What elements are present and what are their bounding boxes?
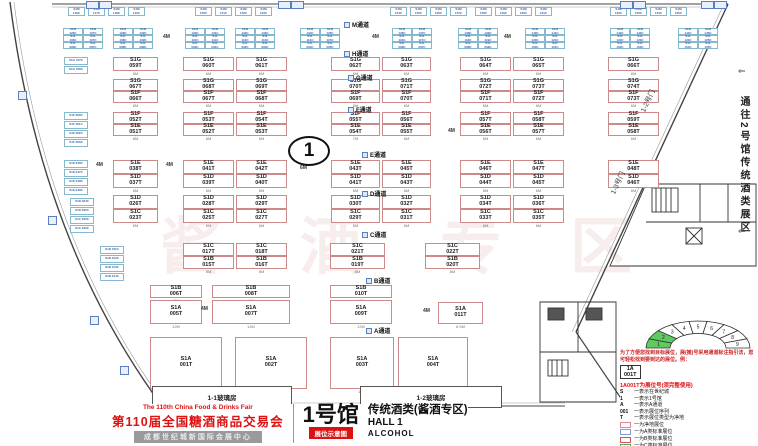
booth-size: 6M	[353, 189, 359, 193]
legend-booth-types: 一为净地展位一为A类标准展位一为B类标准展位一为C类标准展位一为D类标准展位	[620, 422, 757, 446]
booth-S1B-010T[interactable]: S1B010T16M	[330, 285, 392, 298]
booth-S1D-028T[interactable]: S1D028T6M	[183, 195, 234, 209]
booth-S1C-032C[interactable]: S1C 032C	[70, 216, 94, 224]
booth-size: 6M	[483, 224, 489, 228]
booth-size: 6M	[259, 72, 265, 76]
booth-S1F-070T[interactable]: S1F070T6M	[382, 91, 431, 103]
booth-S1M-146C[interactable]: S1M146C	[68, 7, 85, 16]
booth-S1L-090C[interactable]: S1L090C	[185, 42, 205, 49]
booth-size: 6M	[206, 189, 212, 193]
legend-type-row: 一为净地展位	[620, 422, 757, 429]
booth-size: 8M	[206, 270, 212, 274]
arrow-icon: ⇐	[738, 66, 746, 77]
booth-S1D-044T[interactable]: S1D044T6M	[460, 174, 511, 188]
booth-S1M-156C[interactable]: S1M156C	[430, 7, 447, 16]
booth-S1B-019T[interactable]: S1B019T8M	[330, 256, 385, 269]
booth-number: 020T	[446, 263, 459, 269]
booth-S1L-105C[interactable]: S1L105C	[698, 42, 718, 49]
booth-S1C-022T[interactable]: S1C022T8M	[425, 243, 480, 256]
booth-size: 6M	[483, 72, 489, 76]
fan-segment-number: 3	[671, 330, 674, 336]
booth-number: 059T	[129, 64, 142, 70]
booth-S1F-053T[interactable]: S1F053T6M	[183, 112, 234, 124]
booth-number: 043T	[349, 167, 362, 173]
booth-S1M-158C[interactable]: S1M158C	[475, 7, 492, 16]
booth-number: 047T	[532, 167, 545, 173]
booth-S1E-052T[interactable]: S1E052T6M	[183, 124, 234, 136]
booth-S1D-035C[interactable]: S1D 035C	[70, 207, 94, 215]
booth-number: 061T	[255, 64, 268, 70]
booth-S1A-007T[interactable]: S1A007T12M	[212, 300, 290, 324]
booth-S1E-038T[interactable]: S1E038T6M	[113, 160, 158, 174]
booth-S1G-060T[interactable]: S1G060T6M	[183, 57, 234, 71]
booth-S1E-046C[interactable]: S1E 046C	[64, 160, 88, 168]
booth-S1C-031T[interactable]: S1C031T6M	[382, 209, 431, 223]
booth-S1L-099C[interactable]: S1L099C	[478, 42, 498, 49]
booth-S1E-041T[interactable]: S1E041T6M	[183, 160, 234, 174]
hall-name-cn: 1号馆	[303, 404, 359, 426]
booth-S1E-054T[interactable]: S1E054T7M	[331, 124, 380, 136]
booth-S1D-039T[interactable]: S1D039T6M	[183, 174, 234, 188]
booth-S1L-086C[interactable]: S1L086C	[63, 42, 83, 49]
hydrant-icon	[344, 22, 350, 28]
fan-segment-number: 5	[697, 325, 700, 331]
booth-S1F-054T[interactable]: S1F054T6M	[236, 112, 287, 124]
booth-S1A-002T[interactable]: S1A002T10M	[235, 337, 307, 389]
booth-S1G-064T[interactable]: S1G064T6M	[460, 57, 511, 71]
booth-number: 066T	[627, 64, 640, 70]
booth-S1D-034C[interactable]: S1D 034C	[70, 198, 94, 206]
fair-title-cn: 第110届全国糖酒商品交易会	[112, 411, 284, 430]
hall-title: 1号馆 展位示意图	[303, 404, 359, 439]
booth-S1L-103C[interactable]: S1L103C	[630, 42, 650, 49]
booth-size: 6M	[631, 137, 637, 141]
booth-size: 6M	[206, 72, 212, 76]
booth-size: 7M	[353, 137, 359, 141]
booth-S1M-160C[interactable]: S1M160C	[515, 7, 532, 16]
booth-S1C-033C[interactable]: S1C 033C	[70, 225, 94, 233]
booth-number: 037T	[129, 181, 142, 187]
legend-example-booth: 1A 001T	[620, 365, 641, 379]
booth-S1E-046T[interactable]: S1E046T6M	[460, 160, 511, 174]
booth-size: 6M	[133, 72, 139, 76]
booth-S1E-056T[interactable]: S1E056T6M	[460, 124, 511, 136]
booth-size: 6M	[206, 137, 212, 141]
fair-title: The 110th China Food & Drinks Fair 第110届…	[112, 404, 284, 443]
fan-segment-number: 4	[683, 326, 686, 332]
booth-S1G-072T[interactable]: S1G072T6M	[460, 79, 511, 91]
booth-S1F-066T[interactable]: S1F066T6M	[113, 91, 158, 103]
booth-S1F-059T[interactable]: S1F059T6M	[608, 112, 659, 124]
dimension-label: 4M	[372, 34, 379, 40]
aisle-label-H: H通道	[344, 49, 368, 58]
booth-type-swatch	[620, 429, 631, 435]
hall-name-en: HALL 1	[368, 417, 468, 429]
booth-S1G-071T[interactable]: S1G071T6M	[382, 79, 431, 91]
booth-S1A-009T[interactable]: S1A009T12M	[330, 300, 392, 324]
booth-S1B-006T[interactable]: S1B006T8M	[150, 285, 202, 298]
dimension-label: 4M	[166, 162, 173, 168]
building-bottom-right	[540, 302, 616, 402]
booth-S1E-043T[interactable]: S1E043T6M	[331, 160, 380, 174]
booth-S1F-057T[interactable]: S1F057T6M	[460, 112, 511, 124]
booth-number: 022T	[446, 250, 459, 256]
booth-S1L-088C[interactable]: S1L088C	[113, 42, 133, 49]
booth-S1D-045T[interactable]: S1D045T6M	[513, 174, 564, 188]
booth-S1L-087C[interactable]: S1L087C	[83, 42, 103, 49]
booth-S1C-021T[interactable]: S1C021T8M	[330, 243, 385, 256]
dimension-label: 4M	[504, 34, 511, 40]
booth-size: 6M	[483, 137, 489, 141]
dimension-label: 4M	[201, 306, 208, 312]
booth-number: 048T	[627, 167, 640, 173]
booth-size: 6M	[206, 104, 212, 108]
booth-S1D-036T[interactable]: S1D036T6M	[513, 195, 564, 209]
fan-segment-number: 1	[657, 342, 660, 348]
booth-S1G-068T[interactable]: S1G068T6M	[183, 79, 234, 91]
booth-S1F-067T[interactable]: S1F067T6M	[183, 91, 234, 103]
booth-size: 12M	[172, 325, 180, 329]
booth-S1B-020T[interactable]: S1B020T8M	[425, 256, 480, 269]
booth-S1L-101C[interactable]: S1L101C	[545, 42, 565, 49]
hydrant-icon	[344, 51, 350, 57]
door-marker	[278, 1, 291, 9]
booth-S1G-061T[interactable]: S1G061T6M	[236, 57, 287, 71]
booth-S1G-078C[interactable]: S1G 078C	[64, 66, 88, 74]
dimension-label: 4M	[423, 308, 430, 314]
booth-number: 031T	[400, 216, 413, 222]
booth-size: 6M	[536, 137, 542, 141]
booth-S1E-045T[interactable]: S1E045T6M	[382, 160, 431, 174]
booth-S1M-155C[interactable]: S1M155C	[410, 7, 427, 16]
booth-size: 6M	[536, 72, 542, 76]
booth-S1C-029T[interactable]: S1C029T6M	[331, 209, 380, 223]
booth-number: 001T	[180, 363, 193, 369]
door-marker	[291, 1, 304, 9]
booth-S1G-073T[interactable]: S1G073T6M	[513, 79, 564, 91]
booth-number: 035T	[532, 216, 545, 222]
door-marker	[86, 1, 99, 9]
booth-S1M-149C[interactable]: S1M149C	[128, 7, 145, 16]
booth-number: 008T	[245, 292, 258, 298]
booth-size: 6M	[353, 224, 359, 228]
booth-size: 6M	[259, 224, 265, 228]
aisle-label-G: G通道	[348, 73, 373, 82]
booth-S1A-001T[interactable]: S1A001T10M	[150, 337, 222, 389]
aisle-label-B: B通道	[366, 276, 390, 285]
booth-S1M-151C[interactable]: S1M151C	[215, 7, 232, 16]
booth-number: 005T	[170, 312, 183, 318]
booth-S1F-060C[interactable]: S1F 060C	[64, 112, 88, 120]
booth-S1E-042T[interactable]: S1E042T6M	[236, 160, 287, 174]
booth-S1C-035T[interactable]: S1C035T6M	[513, 209, 564, 223]
fan-segment-number: 7	[722, 330, 725, 336]
booth-number: 019T	[351, 263, 364, 269]
booth-number: 030T	[349, 202, 362, 208]
booth-S1A-004T[interactable]: S1A004T10M	[398, 337, 468, 389]
booth-S1B-016T[interactable]: S1B016T8M	[236, 256, 287, 269]
booth-number: 046T	[479, 167, 492, 173]
booth-size: 8M	[450, 270, 456, 274]
booth-S1G-059T[interactable]: S1G059T6M	[113, 57, 158, 71]
booth-size: 6M	[536, 104, 542, 108]
booth-S1M-157C[interactable]: S1M157C	[450, 7, 467, 16]
booth-size: 6M	[483, 189, 489, 193]
aisle-label-E: E通道	[362, 150, 386, 159]
booth-S1L-102C[interactable]: S1L102C	[610, 42, 630, 49]
booth-number: 006T	[170, 292, 183, 298]
booth-number: 060T	[202, 64, 215, 70]
dimension-label: 4M	[163, 34, 170, 40]
booth-S1M-154C[interactable]: S1M154C	[390, 7, 407, 16]
booth-S1C-023T[interactable]: S1C023T6M	[113, 209, 158, 223]
booth-S1F-063C[interactable]: S1F 063C	[64, 139, 88, 147]
booth-S1L-104C[interactable]: S1L104C	[678, 42, 698, 49]
hydrant-icon	[366, 278, 372, 284]
booth-S1G-063T[interactable]: S1G063T6M	[382, 57, 431, 71]
booth-S1L-089C[interactable]: S1L089C	[133, 42, 153, 49]
booth-size: 6M	[631, 72, 637, 76]
aisle-label-F: F通道	[348, 105, 372, 114]
booth-number: 044T	[479, 181, 492, 187]
booth-number: 063T	[400, 64, 413, 70]
booth-S1E-048T[interactable]: S1E048T6M	[608, 160, 659, 174]
booth-S1B-013C[interactable]: S1B 013C	[100, 264, 124, 272]
booth-S1M-152C[interactable]: S1M152C	[235, 7, 252, 16]
building-top-right	[610, 184, 756, 266]
legend-intro: 为了方便您找到目标展位，展(摊)号采用通道标注指引法，您可轻松找到要到达的展位。…	[620, 350, 757, 363]
booth-number: 007T	[245, 312, 258, 318]
booth-S1G-062T[interactable]: S1G062T6M	[331, 57, 380, 71]
booth-number: 029T	[349, 216, 362, 222]
booth-number: 016T	[255, 263, 268, 269]
booth-S1L-097C[interactable]: S1L097C	[412, 42, 432, 49]
door-marker	[701, 1, 714, 9]
booth-S1D-041T[interactable]: S1D041T6M	[331, 174, 380, 188]
booth-S1E-055T[interactable]: S1E055T6M	[382, 124, 431, 136]
booth-size: 6M	[404, 189, 410, 193]
booth-number: 062T	[349, 64, 362, 70]
booth-S1L-098C[interactable]: S1L098C	[458, 42, 478, 49]
booth-S1G-067T[interactable]: S1G067T6M	[113, 79, 158, 91]
booth-number: 046T	[627, 181, 640, 187]
booth-size: 6M	[404, 137, 410, 141]
booth-number: 032T	[400, 202, 413, 208]
booth-size: 6M	[259, 137, 265, 141]
aisle-label-C: C通道	[362, 230, 386, 239]
booth-S1F-052T[interactable]: S1F052T6M	[113, 112, 158, 124]
booth-S1E-049C[interactable]: S1E 049C	[64, 187, 88, 195]
booth-size: 8M	[355, 270, 361, 274]
booth-S1F-056T[interactable]: S1F056T6M	[382, 112, 431, 124]
booth-S1G-077C[interactable]: S1G 077C	[64, 57, 88, 65]
booth-number: 041T	[202, 167, 215, 173]
booth-size: 6M	[133, 189, 139, 193]
booth-size: 8M	[259, 270, 265, 274]
hydrant-icon	[348, 107, 354, 113]
booth-S1E-051T[interactable]: S1E051T6M	[113, 124, 158, 136]
venue-locator-fan: 123456789	[646, 321, 750, 348]
side-note-to-hall2: 通往2号馆传统酒类展区	[736, 96, 751, 235]
booth-S1F-062C[interactable]: S1F 062C	[64, 130, 88, 138]
hydrant-icon	[348, 75, 354, 81]
booth-number: 027T	[255, 216, 268, 222]
booth-S1E-053T[interactable]: S1E053T6M	[236, 124, 287, 136]
booth-S1F-072T[interactable]: S1F072T6M	[513, 91, 564, 103]
booth-S1D-043T[interactable]: S1D043T6M	[382, 174, 431, 188]
booth-S1B-011C[interactable]: S1B 011C	[100, 246, 124, 254]
legend-type-row: 一为A类标准展位	[620, 429, 757, 436]
legend: 为了方便您找到目标展位，展(摊)号采用通道标注指引法，您可轻松找到要到达的展位。…	[620, 350, 757, 446]
booth-size: 6M	[133, 137, 139, 141]
booth-number: 021T	[351, 250, 364, 256]
booth-S1E-058T[interactable]: S1E058T6M	[608, 124, 659, 136]
booth-S1M-165C[interactable]: S1M165C	[670, 7, 687, 16]
booth-number: 045T	[400, 167, 413, 173]
floor-plan: 123456789 酱 酒 专 区 S1G059T6MS1G060T6MS1G0…	[0, 0, 758, 446]
booth-S1M-161C[interactable]: S1M161C	[535, 7, 552, 16]
booth-S1F-068T[interactable]: S1F068T6M	[236, 91, 287, 103]
booth-size: 6M	[631, 189, 637, 193]
booth-S1C-017T[interactable]: S1C017T8M	[183, 243, 234, 256]
fair-title-en: The 110th China Food & Drinks Fair	[143, 404, 253, 411]
booth-type-swatch	[620, 437, 631, 443]
fan-segment-number: 8	[731, 335, 734, 341]
door-marker	[120, 366, 129, 375]
booth-S1F-069T[interactable]: S1F069T6M	[331, 91, 380, 103]
booth-number: 002T	[265, 363, 278, 369]
booth-size: 6M	[536, 189, 542, 193]
booth-S1F-071T[interactable]: S1F071T6M	[460, 91, 511, 103]
booth-S1D-040T[interactable]: S1D040T6M	[236, 174, 287, 188]
booth-number: 011T	[454, 313, 466, 319]
zone-name-cn: 传统酒类(酱酒专区)	[368, 404, 468, 417]
booth-number: 036T	[532, 202, 545, 208]
booth-S1B-008T[interactable]: S1B008T16M	[212, 285, 290, 298]
booth-S1L-095C[interactable]: S1L095C	[320, 42, 340, 49]
booth-S1B-015T[interactable]: S1B015T8M	[183, 256, 234, 269]
booth-number: 034T	[479, 202, 492, 208]
booth-number: 015T	[202, 263, 215, 269]
booth-S1M-150C[interactable]: S1M150C	[195, 7, 212, 16]
booth-S1D-037T[interactable]: S1D037T6M	[113, 174, 158, 188]
door-marker	[90, 316, 99, 325]
booth-number: 029T	[255, 202, 268, 208]
booth-number: 017T	[202, 250, 215, 256]
booth-S1B-014C[interactable]: S1B 014C	[100, 273, 124, 281]
booth-S1M-153C[interactable]: S1M153C	[255, 7, 272, 16]
fan-segment-number: 2	[662, 335, 665, 341]
booth-number: 038T	[129, 167, 142, 173]
aisle-label-A: A通道	[366, 326, 390, 335]
legend-example-bottom: 001T	[624, 372, 637, 378]
door-marker	[620, 1, 633, 9]
booth-S1F-058T[interactable]: S1F058T6M	[513, 112, 564, 124]
booth-S1E-047T[interactable]: S1E047T6M	[513, 160, 564, 174]
booth-S1C-025T[interactable]: S1C025T6M	[183, 209, 234, 223]
booth-S1L-100C[interactable]: S1L100C	[525, 42, 545, 49]
booth-S1A-003T[interactable]: S1A003T10M	[330, 337, 394, 389]
booth-number: 064T	[479, 64, 492, 70]
booth-size: 6M	[631, 104, 637, 108]
legend-definitions: S一表示在世纪城1一表示1号馆A一表示A通道001一表示展位序列T一表示展位类型…	[620, 389, 757, 422]
booth-S1C-027T[interactable]: S1C027T6M	[236, 209, 287, 223]
aisle-label-M: M通道	[344, 20, 369, 29]
door-marker	[633, 1, 646, 9]
booth-number: 033T	[479, 216, 492, 222]
arrow-icon: ⇐	[738, 226, 746, 237]
booth-size: 6M	[259, 104, 265, 108]
booth-S1E-048C[interactable]: S1E 048C	[64, 178, 88, 186]
booth-S1E-057T[interactable]: S1E057T6M	[513, 124, 564, 136]
booth-number: 028T	[202, 202, 215, 208]
booth-S1D-034T[interactable]: S1D034T6M	[460, 195, 511, 209]
booth-S1A-011T[interactable]: S1A011T6.5M	[438, 302, 483, 324]
booth-number: 065T	[532, 64, 545, 70]
booth-S1B-012C[interactable]: S1B 012C	[100, 255, 124, 263]
booth-number: 023T	[129, 216, 142, 222]
booth-S1D-029T[interactable]: S1D029T6M	[236, 195, 287, 209]
booth-number: 025T	[202, 216, 215, 222]
booth-S1L-091C[interactable]: S1L091C	[205, 42, 225, 49]
booth-S1G-065T[interactable]: S1G065T6M	[513, 57, 564, 71]
booth-S1D-032T[interactable]: S1D032T6M	[382, 195, 431, 209]
door-marker	[48, 216, 57, 225]
booth-size: 6M	[133, 104, 139, 108]
booth-size: 6M	[404, 104, 410, 108]
booth-size: 12M	[247, 325, 255, 329]
booth-S1M-159C[interactable]: S1M159C	[495, 7, 512, 16]
booth-size: 6M	[259, 189, 265, 193]
booth-S1G-069T[interactable]: S1G069T6M	[236, 79, 287, 91]
booth-number: 042T	[255, 167, 268, 173]
booth-size: 6M	[206, 224, 212, 228]
booth-size: 6M	[404, 224, 410, 228]
booth-S1G-066T[interactable]: S1G066T6M	[608, 57, 659, 71]
door-marker	[18, 91, 27, 100]
booth-size: 6M	[536, 224, 542, 228]
dimension-label: 4M	[448, 128, 455, 134]
booth-size: 6M	[404, 72, 410, 76]
booth-S1L-092C[interactable]: S1L092C	[235, 42, 255, 49]
booth-S1C-018T[interactable]: S1C018T8M	[236, 243, 287, 256]
booth-number: 041T	[349, 181, 362, 187]
booth-number: 039T	[202, 181, 215, 187]
hydrant-icon	[362, 232, 368, 238]
booth-S1M-164C[interactable]: S1M164C	[650, 7, 667, 16]
booth-S1E-047C[interactable]: S1E 047C	[64, 169, 88, 177]
legend-headline: 1A001T为展位号(须完整使用)	[620, 381, 757, 389]
venue-name: 成都世纪城新国际会展中心	[134, 431, 262, 443]
booth-type-swatch	[620, 422, 631, 428]
dimension-label: 4M	[96, 162, 103, 168]
booth-S1D-026T[interactable]: S1D026T6M	[113, 195, 158, 209]
booth-number: 009T	[355, 312, 368, 318]
booth-S1L-094C[interactable]: S1L094C	[300, 42, 320, 49]
booth-S1L-096C[interactable]: S1L096C	[392, 42, 412, 49]
hall-subtitle: 传统酒类(酱酒专区) HALL 1 ALCOHOL	[368, 404, 468, 438]
booth-S1C-033T[interactable]: S1C033T6M	[460, 209, 511, 223]
booth-S1F-061C[interactable]: S1F 061C	[64, 121, 88, 129]
fan-segment-number: 9	[736, 342, 739, 348]
booth-S1A-005T[interactable]: S1A005T12M	[150, 300, 202, 324]
hydrant-icon	[362, 152, 368, 158]
booth-S1L-093C[interactable]: S1L093C	[255, 42, 275, 49]
title-block: The 110th China Food & Drinks Fair 第110届…	[112, 404, 468, 443]
hydrant-icon	[366, 328, 372, 334]
door-marker	[714, 1, 727, 9]
booth-number: 018T	[255, 250, 268, 256]
